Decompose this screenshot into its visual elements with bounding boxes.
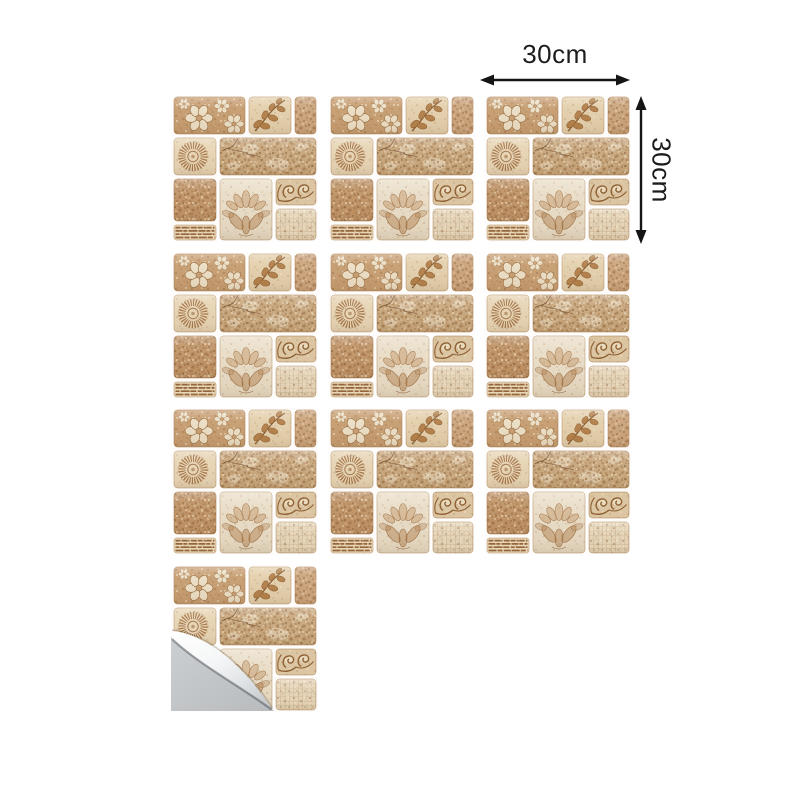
tile-grid (171, 95, 631, 712)
mosaic-tile-art (484, 95, 631, 242)
tile-sticker-5 (328, 252, 475, 399)
product-image: 30cm 30cm (0, 0, 800, 800)
width-arrow-icon (480, 73, 630, 87)
height-dimension-label: 30cm (646, 137, 677, 203)
width-dimension-label: 30cm (480, 40, 630, 70)
width-dimension: 30cm (480, 40, 630, 87)
mosaic-tile-art (328, 252, 475, 399)
tile-sticker-6 (484, 252, 631, 399)
peel-corner (171, 565, 318, 712)
mosaic-tile-art (328, 408, 475, 555)
mosaic-tile-art (171, 252, 318, 399)
tile-sticker-9 (484, 408, 631, 555)
tile-sticker-2 (328, 95, 475, 242)
height-dimension: 30cm (634, 96, 694, 244)
tile-sticker-8 (328, 408, 475, 555)
mosaic-tile-art (171, 95, 318, 242)
mosaic-tile-art (171, 408, 318, 555)
mosaic-tile-art (484, 252, 631, 399)
mosaic-tile-art (328, 95, 475, 242)
tile-sticker-1 (171, 95, 318, 242)
tile-sticker-4 (171, 252, 318, 399)
tile-sticker-10 (171, 565, 318, 712)
tile-sticker-7 (171, 408, 318, 555)
tile-sticker-3 (484, 95, 631, 242)
mosaic-tile-art (484, 408, 631, 555)
